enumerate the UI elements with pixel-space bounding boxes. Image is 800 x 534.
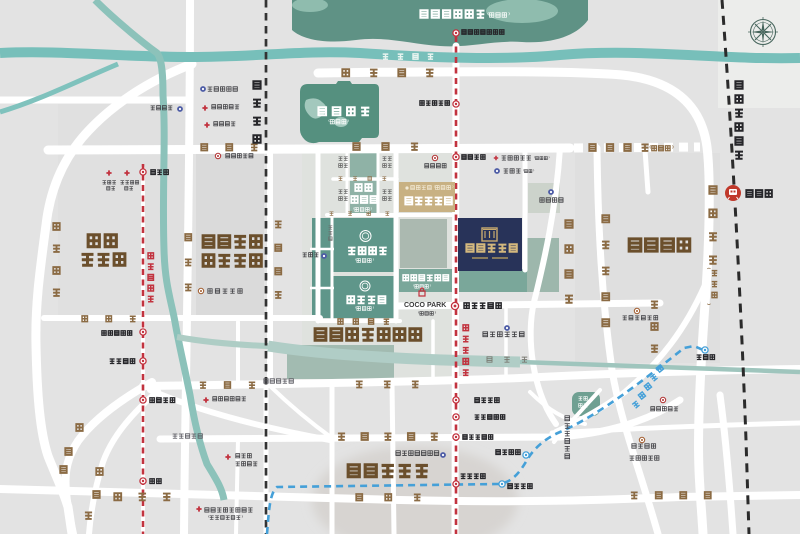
svg-text:COCO PARK: COCO PARK	[404, 302, 446, 309]
